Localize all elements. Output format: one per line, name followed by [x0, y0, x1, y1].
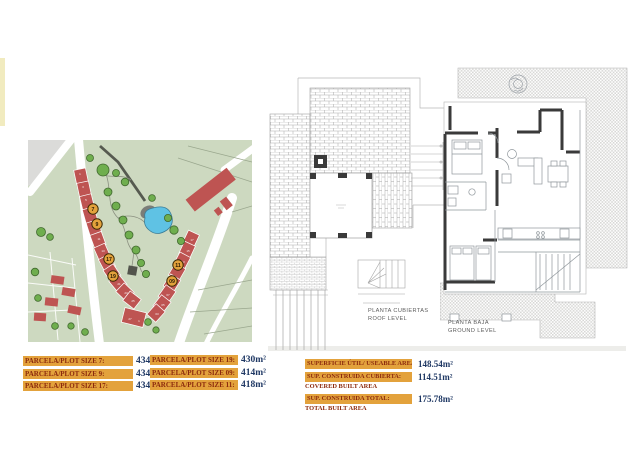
bed-main: [452, 140, 482, 174]
area-value: 148.54m²: [418, 359, 453, 369]
area-label: SUP. CONSTRUIDA CUBIERTA:: [305, 372, 412, 382]
bed-second: [450, 246, 491, 280]
plot-size-label: PARCELA/PLOT SIZE 19:: [150, 355, 238, 365]
roof-title-es: PLANTA CUBIERTAS: [368, 308, 429, 314]
park-hut: [127, 265, 137, 275]
terrace-paving: [270, 257, 326, 290]
chimney: [314, 155, 327, 168]
marker-label: 11: [175, 263, 181, 269]
ground-title-en: GROUND LEVEL: [448, 328, 497, 334]
plot-number: 23: [124, 291, 128, 295]
plot-number: 05: [161, 303, 165, 307]
area-value: 175.78m²: [418, 394, 453, 404]
area-label: SUPERFICIE ÚTIL/ USEABLE AREA:: [305, 359, 412, 369]
plot-marker-09: 09: [167, 276, 177, 286]
area-value: 114.51m²: [418, 372, 452, 382]
plot-size-value: 418m²: [241, 380, 266, 390]
bottom-pergola: [273, 290, 328, 350]
brochure-page: 1 3 5 11 13 15 21 23 25 27 1 17 15 13 07…: [0, 0, 640, 452]
plot-size-value: 414m²: [241, 368, 266, 378]
plot-size-row: PARCELA/PLOT SIZE 7: 434m²: [23, 356, 161, 366]
plot-marker-19: 19: [108, 271, 118, 281]
plot-size-row: PARCELA/PLOT SIZE 17: 434m²: [23, 381, 161, 391]
ground-plan-label: PLANTA BAJA GROUND LEVEL: [448, 320, 497, 334]
plot-size-row: PARCELA/PLOT SIZE 19: 430m²: [150, 355, 266, 365]
marker-label: 19: [110, 274, 116, 280]
plot-size-label: PARCELA/PLOT SIZE 11:: [150, 380, 238, 390]
area-row: SUP. CONSTRUIDA TOTAL: TOTAL BUILT AREA …: [305, 394, 453, 413]
area-sublabel: COVERED BUILT AREA: [305, 382, 412, 391]
plot-marker-9: 9: [92, 219, 102, 229]
roof-stairs: [358, 260, 405, 303]
plot-size-label: PARCELA/PLOT SIZE 7:: [23, 356, 133, 366]
plot-number: 25: [131, 299, 135, 303]
plot-number: 07: [166, 293, 170, 297]
area-label: SUP. CONSTRUIDA TOTAL:: [305, 394, 412, 404]
marker-label: 9: [96, 222, 99, 228]
plot-marker-11: 11: [173, 260, 183, 270]
left-edge-artifact: [0, 58, 5, 126]
plot-size-label: PARCELA/PLOT SIZE 09:: [150, 368, 238, 378]
roof-level-plan: PLANTA CUBIERTAS ROOF LEVEL: [268, 62, 450, 352]
plot-number: 03: [155, 312, 159, 316]
marker-label: 09: [169, 279, 175, 285]
ground-level-plan: PLANTA BAJA GROUND LEVEL: [440, 62, 628, 350]
roof-title-en: ROOF LEVEL: [368, 316, 407, 322]
area-sublabel: TOTAL BUILT AREA: [305, 404, 412, 413]
plot-number: 27: [128, 317, 132, 321]
plot-size-row: PARCELA/PLOT SIZE 09: 414m²: [150, 368, 266, 378]
plot-size-label: PARCELA/PLOT SIZE 17:: [23, 381, 133, 391]
plot-marker-17: 17: [104, 254, 114, 264]
marker-label: 7: [92, 207, 95, 213]
ground-title-es: PLANTA BAJA: [448, 320, 489, 326]
plot-number: 11: [97, 237, 100, 241]
plot-number: 15: [186, 249, 190, 253]
plot-size-table-col1: PARCELA/PLOT SIZE 7: 434m² PARCELA/PLOT …: [23, 356, 161, 394]
site-plan-map: 1 3 5 11 13 15 21 23 25 27 1 17 15 13 07…: [28, 140, 252, 342]
roof-plan-label: PLANTA CUBIERTAS ROOF LEVEL: [368, 308, 429, 322]
plot-number: 13: [101, 249, 105, 253]
plot-size-value: 430m²: [241, 355, 266, 365]
plot-size-row: PARCELA/PLOT SIZE 11: 418m²: [150, 380, 266, 390]
side-pergola: [411, 142, 443, 190]
plot-marker-7: 7: [88, 204, 98, 214]
porch: [310, 173, 372, 238]
plot-number: 21: [117, 282, 121, 286]
plot-size-row: PARCELA/PLOT SIZE 9: 434m²: [23, 369, 161, 379]
plot-size-table-col2: PARCELA/PLOT SIZE 19: 430m² PARCELA/PLOT…: [150, 355, 266, 393]
built-area-table: SUPERFICIE ÚTIL/ USEABLE AREA: 148.54m² …: [305, 359, 453, 416]
plot-number: 17: [190, 238, 194, 242]
area-row: SUP. CONSTRUIDA CUBIERTA: COVERED BUILT …: [305, 372, 453, 391]
area-row: SUPERFICIE ÚTIL/ USEABLE AREA: 148.54m²: [305, 359, 453, 369]
kitchen-counter: [498, 228, 580, 239]
marker-label: 17: [106, 257, 112, 263]
plot-size-label: PARCELA/PLOT SIZE 9:: [23, 369, 133, 379]
